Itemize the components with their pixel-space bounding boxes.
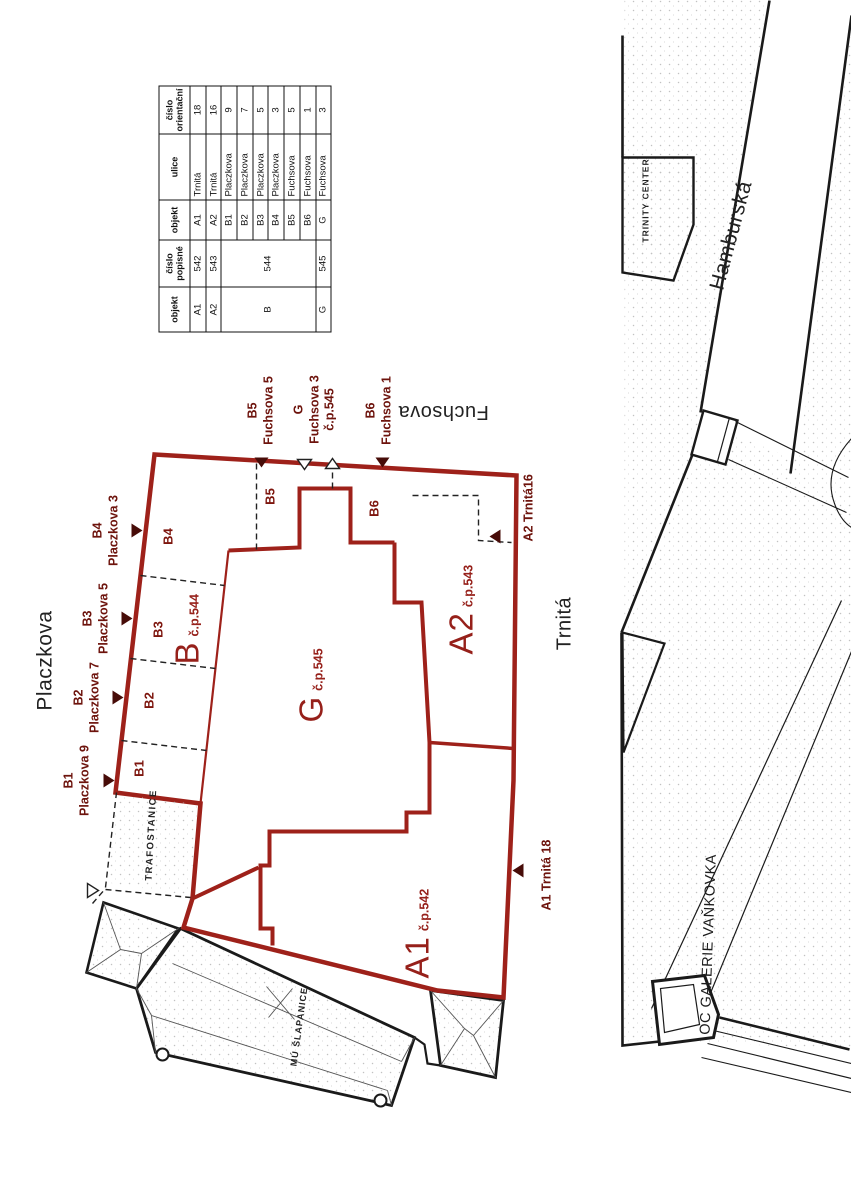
cell: Placzkova (252, 134, 268, 200)
marker-label-b1: B1Placzkova 9 (61, 745, 92, 816)
cell: Fuchsova (299, 134, 315, 200)
parcel-label-b2: B2 (141, 692, 156, 709)
cell: 544 (221, 240, 315, 287)
marker-label-b5: B5Fuchsova 5 (245, 376, 276, 445)
building-cp-543: č.p.543 (461, 564, 475, 606)
street-label-trnita: Trnitá (553, 596, 576, 649)
street-label-placzkova: Placzkova (33, 610, 57, 710)
marker-b2-icon (112, 690, 123, 704)
cell: 545 (315, 240, 331, 287)
walkway-south-line-2 (707, 1043, 851, 1078)
table-row: A2 543 A2 Trnitá 16 (205, 85, 221, 331)
marker-label-b4: B4Placzkova 3 (90, 495, 121, 566)
cell: B1 (221, 200, 237, 240)
col-cislo-popisne: číslo popisné (159, 240, 190, 287)
marker-label-b6: B6Fuchsova 1 (363, 376, 394, 445)
cell: A1 (190, 287, 206, 332)
cell: 5 (252, 85, 268, 133)
parcel-label-b3: B3 (150, 621, 165, 638)
cell: 16 (205, 85, 221, 133)
marker-trafostanice-icon (87, 883, 98, 897)
cell: G (315, 200, 331, 240)
marker-label-b3: B3Placzkova 5 (80, 583, 111, 654)
col-ulice: ulice (159, 134, 190, 200)
cell: 3 (315, 85, 331, 133)
cell: 543 (205, 240, 221, 287)
cell: Placzkova (221, 134, 237, 200)
cell: B (221, 287, 315, 332)
marker-b4-icon (131, 523, 142, 537)
building-label-g: Gč.p.545 (292, 648, 330, 722)
marker-b3-icon (121, 611, 132, 625)
table-header-row: objekt číslo popisné objekt ulice číslo … (159, 85, 190, 331)
table-row: A1 542 A1 Trnitá 18 (190, 85, 206, 331)
parcel-label-b6: B6 (366, 500, 381, 517)
cell: 1 (299, 85, 315, 133)
plan-drawing (0, 0, 851, 1200)
parcel-label-b1: B1 (131, 760, 146, 777)
building-label-b: Bč.p.544 (168, 594, 206, 664)
building-cp-545: č.p.545 (311, 648, 325, 690)
cell: 18 (190, 85, 206, 133)
cell: Placzkova (268, 134, 284, 200)
table-row: G 545 G Fuchsova 3 (315, 85, 331, 331)
cell: B6 (299, 200, 315, 240)
cell: 5 (284, 85, 300, 133)
col-objekt-2: objekt (159, 200, 190, 240)
marker-label-b2: B2Placzkova 7 (71, 662, 102, 733)
cell: Trnitá (190, 134, 206, 200)
cell: 542 (190, 240, 206, 287)
cell: Trnitá (205, 134, 221, 200)
building-label-a1: A1č.p.542 (398, 888, 436, 978)
cell: 3 (268, 85, 284, 133)
cell: A1 (190, 200, 206, 240)
building-cp-544: č.p.544 (187, 594, 201, 636)
building-letter-g: G (292, 695, 329, 722)
building-label-a2: A2č.p.543 (442, 564, 480, 654)
cell: 9 (221, 85, 237, 133)
plan-stage: Placzkova Fuchsova Trnitá Hamburská OC G… (0, 0, 851, 1200)
building-letter-a2: A2 (442, 612, 479, 654)
parcel-label-b5: B5 (262, 488, 277, 505)
cell: B2 (237, 200, 253, 240)
parcel-label-b4: B4 (160, 528, 175, 545)
marker-label-a2: A2 Trnitá16 (521, 474, 537, 541)
street-label-fuchsova: Fuchsova (398, 400, 489, 423)
label-trinity-center: TRINITY CENTER (640, 158, 650, 242)
cell: A2 (205, 200, 221, 240)
cell: Placzkova (237, 134, 253, 200)
col-cislo-orientacni: číslo orientační (159, 85, 190, 133)
mu-edge-notch-2 (374, 1094, 386, 1106)
mu-slapanice-south-wing (430, 990, 503, 1077)
building-letter-b: B (168, 641, 205, 664)
cell: Fuchsova (284, 134, 300, 200)
cell: B3 (252, 200, 268, 240)
col-objekt: objekt (159, 287, 190, 332)
marker-b1-icon (103, 773, 114, 787)
cell: Fuchsova (315, 134, 331, 200)
cell: G (315, 287, 331, 332)
building-cp-542: č.p.542 (417, 888, 431, 930)
walkway-south-line-3 (701, 1057, 851, 1092)
table-row: B 544 B1 Placzkova 9 (221, 85, 237, 331)
cell: 7 (237, 85, 253, 133)
cell: A2 (205, 287, 221, 332)
marker-a1-icon (512, 863, 523, 877)
marker-label-g: GFuchsova 3č.p.545 (291, 375, 338, 444)
marker-label-a1: A1 Trnitá 18 (539, 839, 555, 910)
cell: B4 (268, 200, 284, 240)
cell: B5 (284, 200, 300, 240)
address-table: objekt číslo popisné objekt ulice číslo … (158, 85, 331, 332)
mu-edge-notch-1 (156, 1048, 168, 1060)
building-letter-a1: A1 (398, 936, 435, 978)
scanned-site-plan: Placzkova Fuchsova Trnitá Hamburská OC G… (0, 0, 851, 1200)
